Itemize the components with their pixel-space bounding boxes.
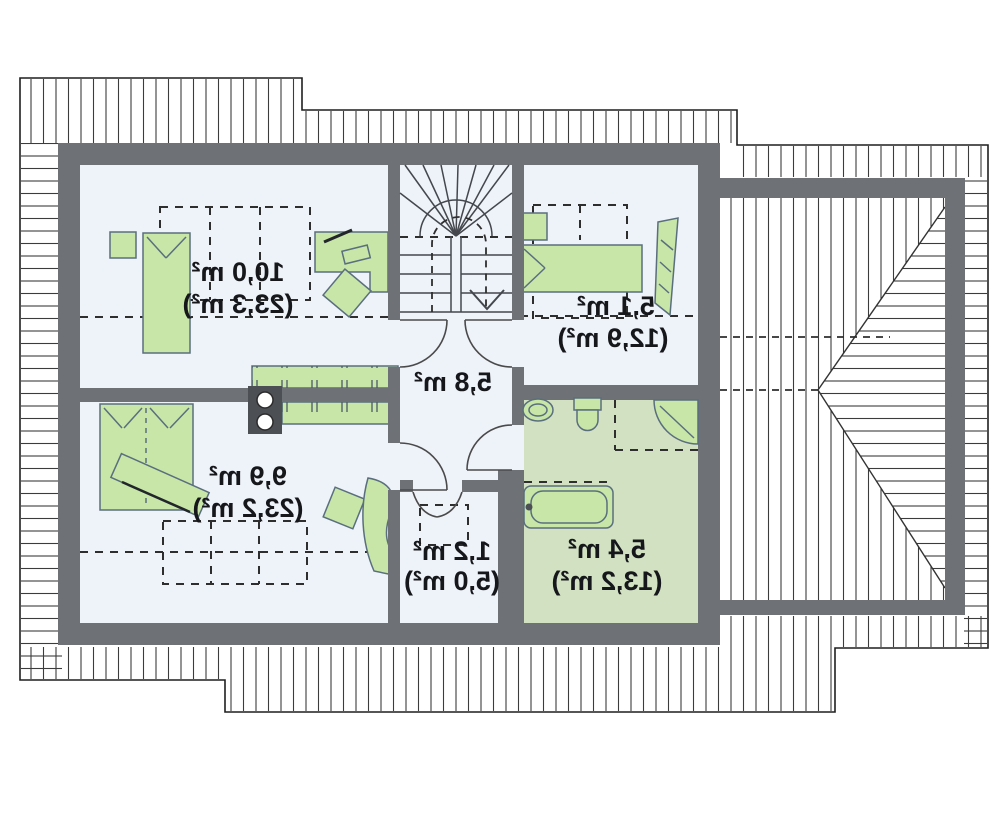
label-bedroom2-floor: (12,9 m²) bbox=[557, 323, 668, 353]
chimney-flue-2 bbox=[257, 414, 273, 430]
label-bedroom3-floor: (23,2 m²) bbox=[192, 493, 303, 523]
label-bathroom-area: 5,4 m² bbox=[568, 534, 646, 564]
chimney-flue-1 bbox=[257, 392, 273, 408]
wall-stair-left-upper bbox=[388, 165, 400, 320]
label-bedroom1-area: 10,0 m² bbox=[191, 257, 284, 287]
bathtub-faucet bbox=[526, 504, 533, 511]
wall-stair-right-upper bbox=[512, 165, 524, 320]
wall-room1-room3-divider bbox=[80, 388, 400, 402]
garage-wall-bottom bbox=[720, 600, 965, 615]
roof-hatch-left bbox=[21, 143, 62, 679]
bed-room2 bbox=[520, 245, 642, 292]
label-closet-floor: (5,0 m²) bbox=[404, 566, 500, 596]
floor-plan-page: 10,0 m² (23,3 m²) 5,1 m² (12,9 m²) 5,8 m… bbox=[0, 0, 1000, 823]
label-bedroom3-area: 9,9 m² bbox=[209, 461, 287, 491]
wall-bath-left-upper bbox=[512, 400, 524, 425]
wardrobe-row-top-ticks bbox=[252, 366, 398, 388]
garage-wall-top bbox=[720, 178, 965, 198]
toilet-tank bbox=[574, 398, 601, 410]
wall-bath-left-lower bbox=[498, 470, 524, 623]
nightstand-room1 bbox=[110, 232, 136, 258]
wall-room2-bath-divider bbox=[512, 385, 698, 400]
roof-hatch-top-left bbox=[21, 79, 302, 143]
wall-corridor-left-lower bbox=[388, 490, 400, 623]
wardrobe-row-bottom-ticks bbox=[282, 402, 398, 424]
wall-ext-left bbox=[58, 143, 80, 645]
roof-hatch-bottom-deep bbox=[225, 647, 835, 711]
roof-hatch-garage-bottom bbox=[720, 616, 987, 647]
label-closet-area: 1,2 m² bbox=[413, 536, 491, 566]
roof-hatch-top-mid bbox=[302, 111, 737, 143]
wall-corridor-left-mid bbox=[388, 367, 400, 443]
wall-ext-right bbox=[698, 143, 720, 645]
garage-roof-plan bbox=[720, 178, 965, 615]
roof-hatch-garage-top bbox=[737, 146, 987, 177]
label-bedroom1-floor: (23,3 m²) bbox=[182, 289, 293, 319]
toilet-bowl bbox=[577, 410, 598, 431]
floor-plan-svg: 10,0 m² (23,3 m²) 5,1 m² (12,9 m²) 5,8 m… bbox=[0, 0, 1000, 823]
wall-closet-top-stub-right bbox=[462, 480, 498, 492]
garage-wall-right bbox=[945, 178, 965, 615]
label-bedroom2-area: 5,1 m² bbox=[577, 291, 655, 321]
wall-ext-bottom bbox=[58, 623, 720, 645]
roof-hatch-bottom-left bbox=[21, 647, 225, 679]
wall-ext-top bbox=[58, 143, 720, 165]
washbasin bbox=[523, 399, 553, 421]
label-hall-area: 5,8 m² bbox=[414, 367, 492, 397]
roof-hatch-right bbox=[964, 178, 987, 647]
label-bathroom-floor: (13,2 m²) bbox=[551, 566, 662, 596]
nightstand-room2 bbox=[523, 213, 547, 240]
